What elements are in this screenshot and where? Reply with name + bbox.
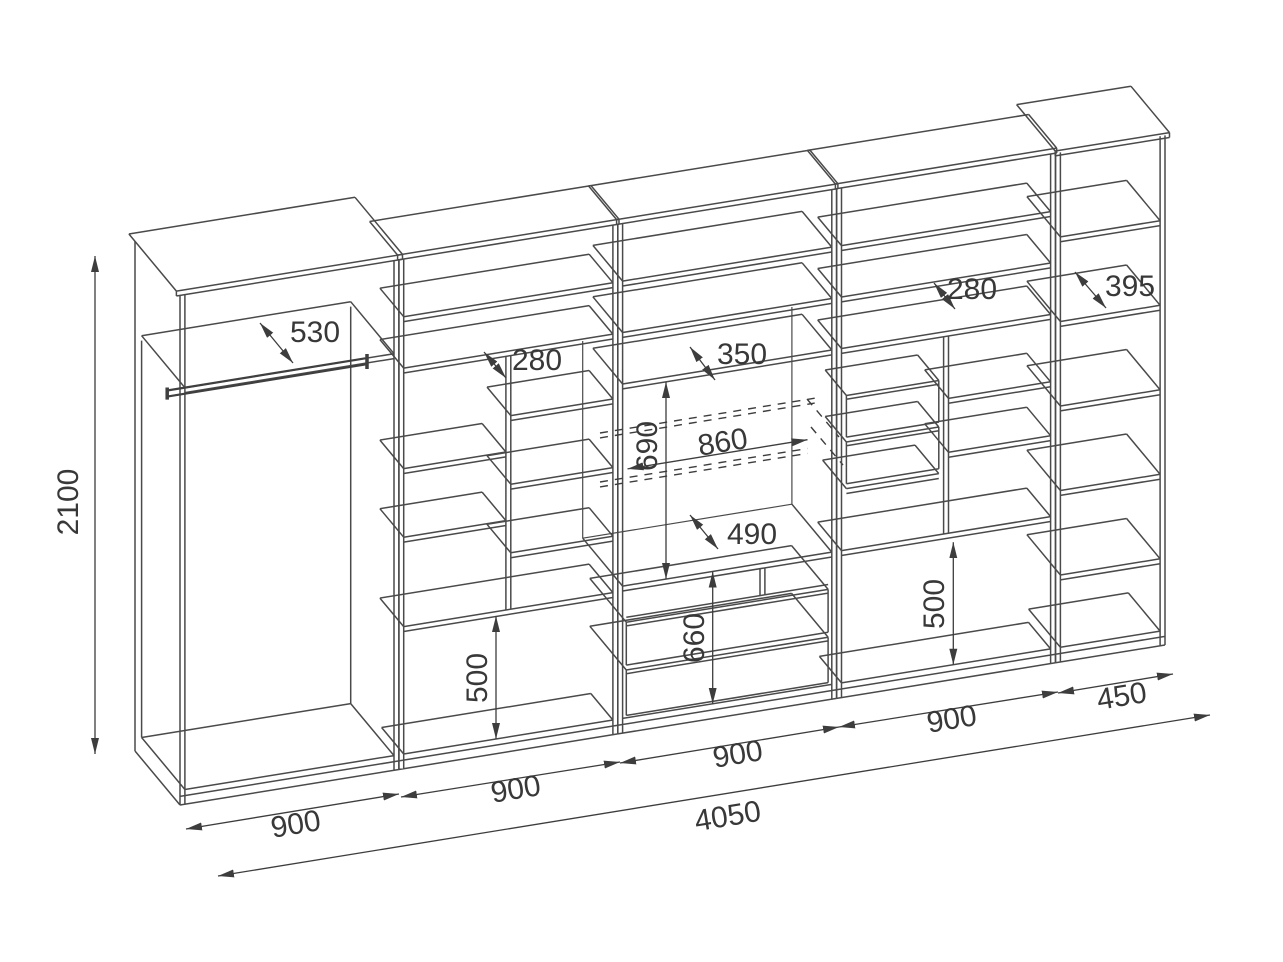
dim-stand-depth-line bbox=[690, 515, 718, 549]
dimension-labels: 2100 530 280 350 860 690 490 660 500 280… bbox=[52, 270, 1155, 845]
section5-top-panel bbox=[1017, 86, 1170, 156]
wardrobe-top-panel bbox=[129, 197, 403, 296]
wardrobe-section bbox=[129, 197, 403, 805]
dim-total-width: 4050 bbox=[692, 795, 763, 838]
section5-shelves bbox=[1027, 180, 1160, 580]
tv-stand-top bbox=[583, 504, 832, 617]
section3-shelves bbox=[593, 211, 832, 389]
section4-top-panel bbox=[807, 115, 1056, 189]
section2-top-panel bbox=[370, 186, 619, 260]
section5-carcass bbox=[1029, 135, 1165, 662]
assembly-drawing: 2100 530 280 350 860 690 490 660 500 280… bbox=[0, 0, 1283, 962]
hanging-rod bbox=[167, 358, 365, 396]
dim-total-width-line bbox=[218, 715, 1210, 876]
bookcase-section-5 bbox=[1017, 86, 1170, 663]
dim-niche-width: 860 bbox=[695, 422, 750, 463]
dim-section5-width: 450 bbox=[1094, 676, 1149, 717]
wardrobe-carcass bbox=[135, 241, 399, 805]
dim-section3-width: 900 bbox=[710, 734, 765, 775]
dim-section1-width: 900 bbox=[268, 804, 323, 845]
dim-section2-width: 900 bbox=[488, 769, 543, 810]
dim-section3-shelf-depth: 350 bbox=[717, 338, 767, 371]
dim-total-height: 2100 bbox=[52, 469, 85, 536]
shelf-section-2 bbox=[370, 186, 619, 770]
dim-wardrobe-shelf-depth: 530 bbox=[290, 316, 340, 349]
dim-section5-shelf-depth-line bbox=[1075, 272, 1106, 308]
dim-section3-shelf-depth-line bbox=[690, 347, 715, 380]
dim-drawer-unit-height: 660 bbox=[678, 613, 711, 663]
dim-section2-shelf-depth-line bbox=[484, 352, 506, 378]
dim-section2-bay-height: 500 bbox=[461, 653, 494, 703]
dim-niche-height: 690 bbox=[631, 421, 664, 471]
dim-section4-bay-height: 500 bbox=[918, 579, 951, 629]
dim-section2-shelf-depth: 280 bbox=[512, 344, 562, 377]
dim-stand-depth: 490 bbox=[727, 518, 777, 551]
dim-section4-width: 900 bbox=[924, 699, 979, 740]
section2-divider bbox=[506, 356, 511, 610]
dim-wardrobe-shelf-depth-line bbox=[260, 323, 293, 363]
dim-section4-shelf-depth: 280 bbox=[947, 273, 997, 306]
section3-top-panel bbox=[589, 150, 838, 224]
section2-shelves bbox=[380, 254, 613, 631]
assembly-drawing-page: 2100 530 280 350 860 690 490 660 500 280… bbox=[0, 0, 1283, 962]
dim-section5-shelf-depth: 395 bbox=[1105, 270, 1155, 303]
section4-shelves bbox=[818, 183, 1051, 555]
